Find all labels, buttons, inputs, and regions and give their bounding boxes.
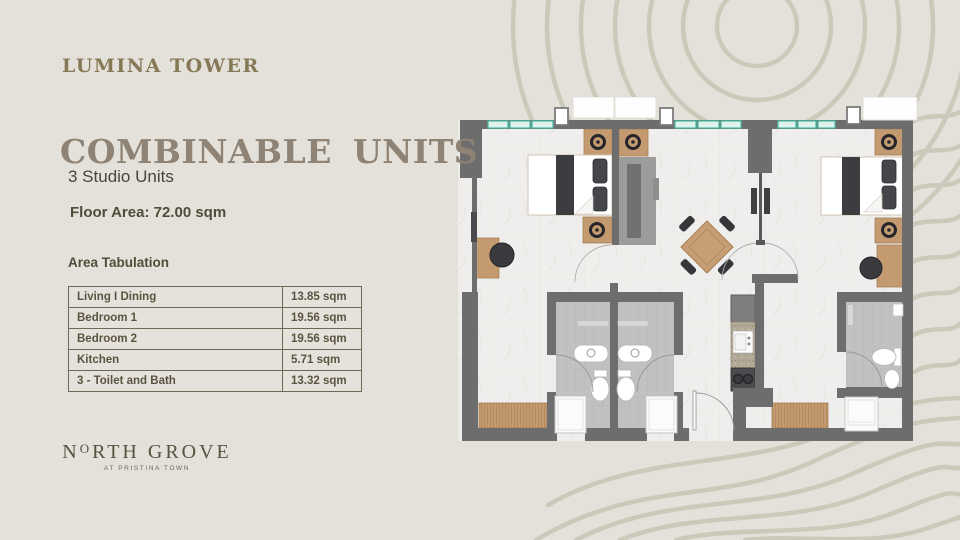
shower [555,396,586,433]
room-label: 3 - Toilet and Bath [69,371,283,392]
ac-ledge-boxes [573,97,917,120]
toilet [591,377,609,401]
wash-basin [885,370,900,389]
chair-left [490,243,514,267]
unit-subtitle: 3 Studio Units [68,167,174,187]
room-label: Kitchen [69,350,283,371]
dining-set [678,215,736,276]
table-row: Living I Dining 13.85 sqm [69,287,362,308]
logo-raised-o: O [80,441,92,456]
floor-area-label: Floor Area: 72.00 sqm [70,204,226,221]
room-label: Bedroom 1 [69,308,283,329]
toilet [872,349,896,366]
logo-tagline: AT PRISTINA TOWN [62,465,232,472]
area-tabulation-heading: Area Tabulation [68,255,169,270]
slide-background: LUMINA TOWER COMBINABLE UNITS 3 Studio U… [0,0,960,540]
kitchen [731,295,755,391]
room-area-value: 13.85 sqm [283,287,362,308]
logo-wordmark: NORTH GROVE [62,441,232,464]
vanity-sink [574,345,608,362]
table-row: Kitchen 5.71 sqm [69,350,362,371]
room-area-value: 19.56 sqm [283,329,362,350]
project-name: LUMINA TOWER [62,55,260,77]
table-row: Bedroom 1 19.56 sqm [69,308,362,329]
room-label: Bedroom 2 [69,329,283,350]
bed-right [821,157,903,215]
wardrobe-rug [619,157,659,245]
toilet [617,377,635,401]
refrigerator [731,295,755,322]
developer-logo: NORTH GROVE AT PRISTINA TOWN [62,441,232,472]
room-label: Living I Dining [69,287,283,308]
floor-plan [450,97,920,441]
bed-left [528,155,612,215]
table-row: 3 - Toilet and Bath 13.32 sqm [69,371,362,392]
room-area-value: 19.56 sqm [283,308,362,329]
table-row: Bedroom 2 19.56 sqm [69,329,362,350]
area-tabulation-table: Living I Dining 13.85 sqm Bedroom 1 19.5… [68,286,362,392]
room-area-value: 13.32 sqm [283,371,362,392]
page-title: COMBINABLE UNITS [60,132,478,171]
balcony-deck-right [772,403,828,428]
laundry-area [845,397,878,431]
room-area-value: 5.71 sqm [283,350,362,371]
balcony-door-left [471,212,477,242]
balcony-deck-left [479,403,547,428]
shower [646,396,677,433]
chair-right [860,257,882,279]
vanity-sink [618,345,652,362]
